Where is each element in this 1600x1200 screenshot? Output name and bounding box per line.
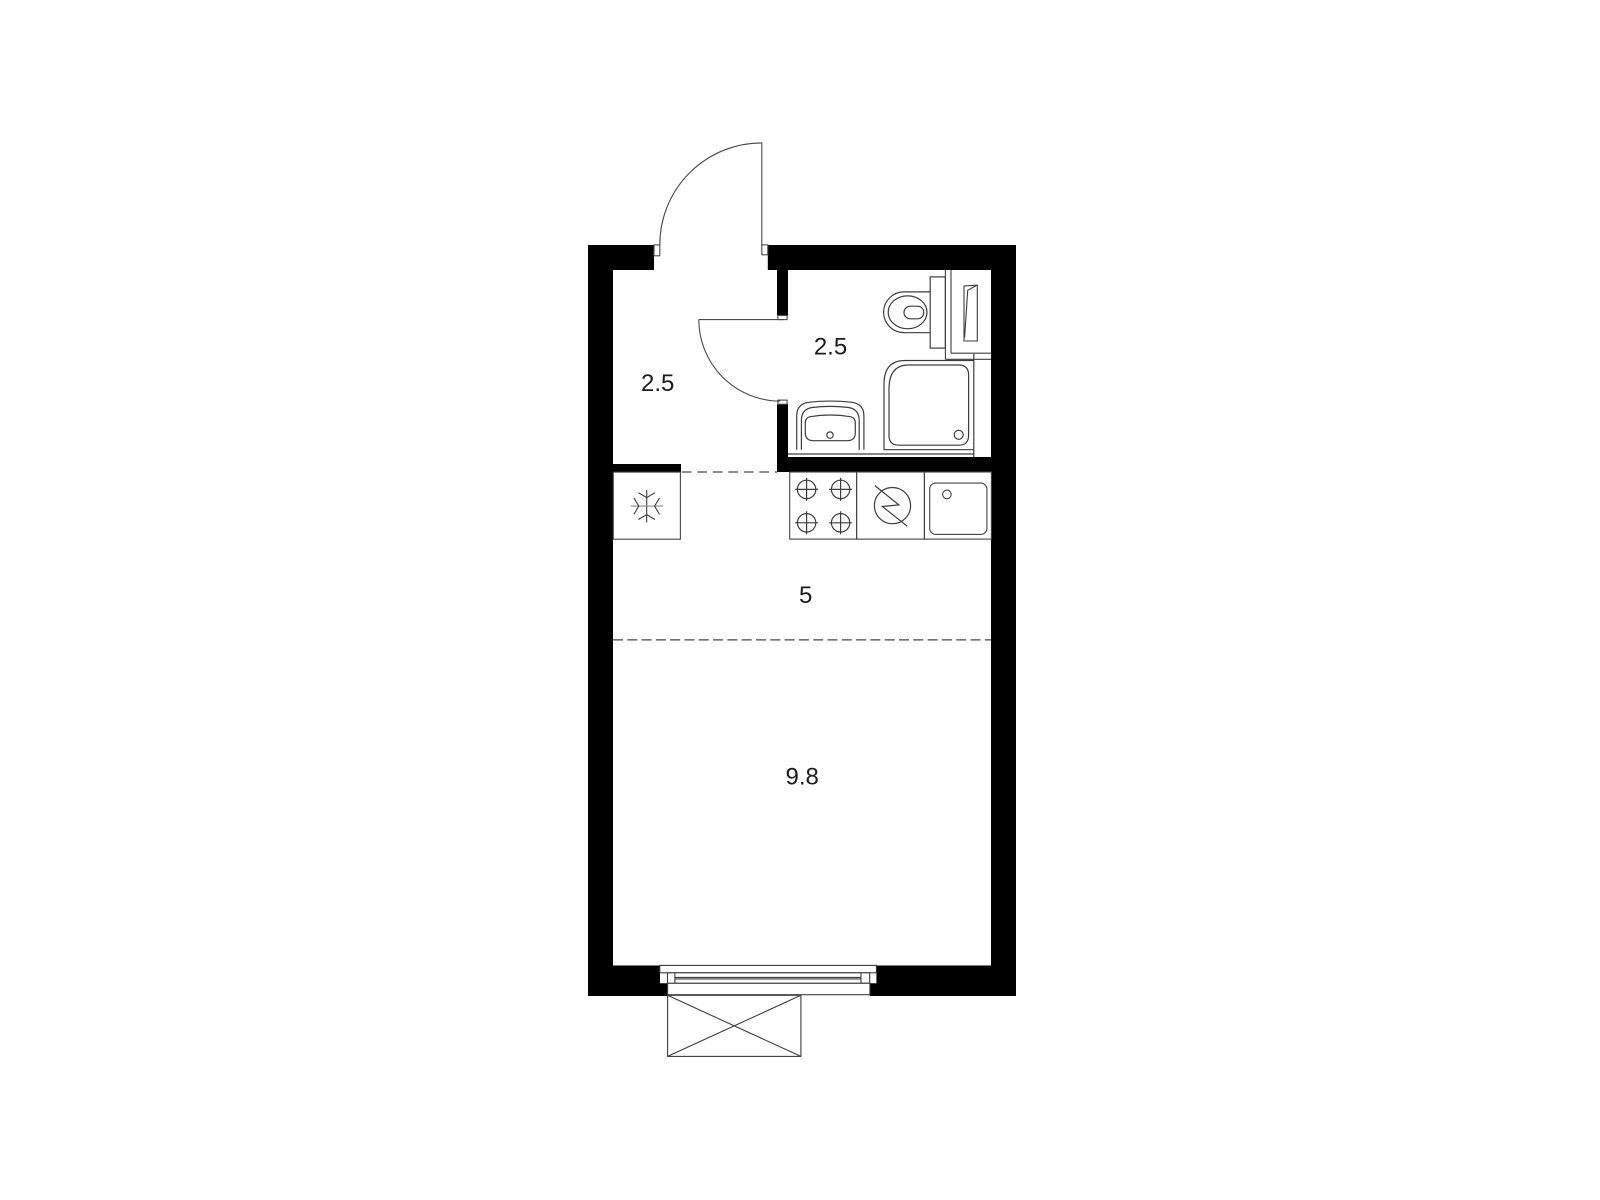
svg-text:2.5: 2.5 — [641, 370, 674, 397]
svg-text:2.5: 2.5 — [814, 333, 847, 360]
svg-text:9.8: 9.8 — [786, 764, 819, 791]
svg-text:5: 5 — [799, 582, 812, 609]
